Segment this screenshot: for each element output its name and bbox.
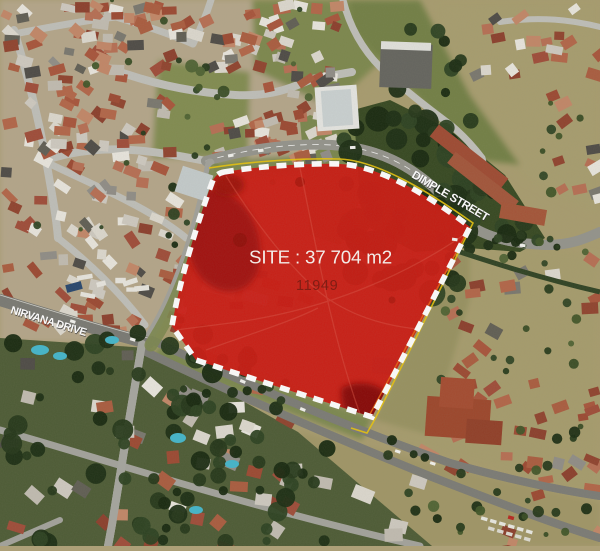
svg-text:11949: 11949 (296, 278, 338, 294)
svg-text:SITE : 37 704 m2: SITE : 37 704 m2 (249, 247, 392, 268)
